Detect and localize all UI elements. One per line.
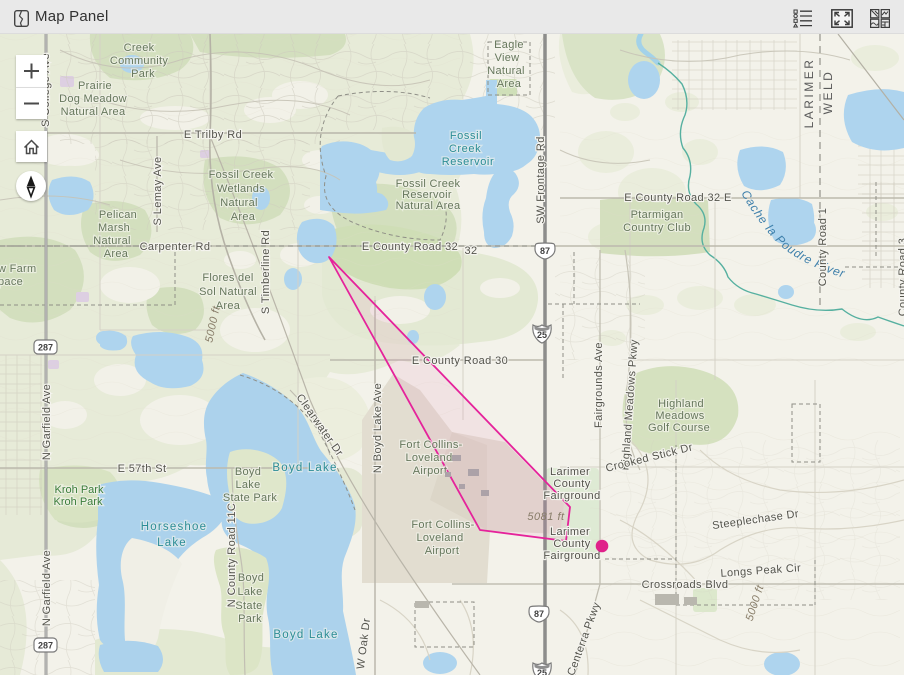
svg-text:Larimer: Larimer bbox=[550, 526, 590, 538]
svg-text:N County Road 11C: N County Road 11C bbox=[226, 503, 238, 607]
svg-text:State Park: State Park bbox=[223, 492, 278, 504]
svg-text:Airport: Airport bbox=[425, 545, 460, 557]
svg-text:County: County bbox=[553, 538, 590, 550]
svg-text:Country Club: Country Club bbox=[623, 222, 691, 234]
svg-text:Wetlands: Wetlands bbox=[217, 183, 265, 195]
svg-text:Park: Park bbox=[238, 613, 262, 625]
svg-text:Fossil Creek: Fossil Creek bbox=[209, 169, 274, 181]
svg-text:N Boyd Lake Ave: N Boyd Lake Ave bbox=[372, 383, 384, 473]
svg-text:25: 25 bbox=[537, 668, 547, 675]
svg-text:Dog Meadow: Dog Meadow bbox=[59, 93, 127, 105]
svg-text:87: 87 bbox=[540, 246, 550, 256]
svg-text:Fairground: Fairground bbox=[543, 550, 600, 562]
svg-text:Golf Course: Golf Course bbox=[648, 422, 710, 434]
svg-text:Natural: Natural bbox=[220, 197, 258, 209]
svg-text:Crossroads Blvd: Crossroads Blvd bbox=[642, 579, 729, 591]
svg-text:N Garfield Ave: N Garfield Ave bbox=[41, 550, 53, 626]
svg-text:Kroh Park: Kroh Park bbox=[55, 484, 104, 496]
svg-text:Fort Collins-: Fort Collins- bbox=[399, 439, 462, 451]
svg-text:E County Road 30: E County Road 30 bbox=[412, 355, 508, 367]
svg-text:Boyd Lake: Boyd Lake bbox=[273, 629, 338, 641]
svg-text:Prairie: Prairie bbox=[78, 80, 112, 92]
svg-text:Area: Area bbox=[231, 211, 256, 223]
svg-text:S Timberline Rd: S Timberline Rd bbox=[260, 230, 272, 314]
svg-text:5081 ft: 5081 ft bbox=[527, 511, 565, 523]
svg-text:Meadows: Meadows bbox=[655, 410, 704, 422]
svg-text:Lake: Lake bbox=[235, 479, 260, 491]
svg-text:Natural: Natural bbox=[93, 235, 131, 247]
svg-text:87: 87 bbox=[534, 609, 544, 619]
svg-text:Fossil: Fossil bbox=[450, 130, 482, 142]
svg-text:County Road 1: County Road 1 bbox=[817, 208, 829, 287]
svg-text:Boyd: Boyd bbox=[235, 466, 261, 478]
svg-text:County Road 3: County Road 3 bbox=[897, 238, 904, 317]
svg-text:Creek: Creek bbox=[449, 143, 481, 155]
svg-text:Ptarmigan: Ptarmigan bbox=[631, 209, 684, 221]
svg-text:pace: pace bbox=[0, 276, 23, 288]
svg-text:Area: Area bbox=[104, 248, 129, 260]
svg-text:Natural Area: Natural Area bbox=[396, 200, 461, 212]
svg-text:Boyd Lake: Boyd Lake bbox=[272, 462, 337, 474]
svg-text:S Lemay Ave: S Lemay Ave bbox=[152, 156, 164, 225]
svg-text:SW Frontage Rd: SW Frontage Rd bbox=[535, 136, 547, 224]
svg-text:View: View bbox=[495, 52, 520, 64]
svg-text:Kroh Park: Kroh Park bbox=[54, 496, 103, 508]
svg-text:Carpenter Rd: Carpenter Rd bbox=[140, 241, 211, 253]
svg-text:32: 32 bbox=[464, 245, 477, 257]
svg-text:LARIMER: LARIMER bbox=[802, 58, 816, 129]
svg-text:Boyd: Boyd bbox=[238, 572, 264, 584]
svg-text:25: 25 bbox=[537, 330, 547, 340]
svg-text:Park: Park bbox=[131, 68, 155, 80]
svg-text:287: 287 bbox=[38, 641, 53, 651]
svg-text:E 57th St: E 57th St bbox=[118, 463, 167, 475]
svg-text:Marsh: Marsh bbox=[98, 222, 130, 234]
svg-text:Lake: Lake bbox=[237, 586, 262, 598]
svg-text:Eagle: Eagle bbox=[494, 39, 524, 51]
svg-text:E County Road 32: E County Road 32 bbox=[362, 241, 458, 253]
svg-text:287: 287 bbox=[38, 343, 53, 353]
svg-text:Horseshoe: Horseshoe bbox=[141, 521, 207, 533]
svg-text:Pelican: Pelican bbox=[99, 209, 137, 221]
svg-text:Fairgrounds Ave: Fairgrounds Ave bbox=[593, 342, 605, 428]
svg-text:Airport: Airport bbox=[413, 465, 448, 477]
svg-text:Larimer: Larimer bbox=[550, 466, 590, 478]
svg-text:E County Road 32 E: E County Road 32 E bbox=[624, 192, 731, 204]
svg-text:Natural: Natural bbox=[487, 65, 525, 77]
svg-text:WELD: WELD bbox=[821, 70, 835, 115]
svg-text:State: State bbox=[235, 600, 262, 612]
svg-text:Natural Area: Natural Area bbox=[61, 106, 126, 118]
svg-text:Sol Natural: Sol Natural bbox=[199, 286, 257, 298]
svg-text:N Garfield Ave: N Garfield Ave bbox=[41, 384, 53, 460]
svg-text:Community: Community bbox=[110, 55, 169, 67]
svg-text:E Trilby Rd: E Trilby Rd bbox=[184, 129, 242, 141]
svg-text:w Farm: w Farm bbox=[0, 263, 36, 275]
svg-text:Highland: Highland bbox=[658, 398, 704, 410]
svg-text:County: County bbox=[553, 478, 590, 490]
svg-text:Flores del: Flores del bbox=[202, 272, 253, 284]
svg-text:Reservoir: Reservoir bbox=[442, 156, 494, 168]
svg-text:Fort Collins-: Fort Collins- bbox=[411, 519, 474, 531]
svg-text:Area: Area bbox=[497, 78, 522, 90]
svg-text:Loveland: Loveland bbox=[416, 532, 463, 544]
svg-text:Fairground: Fairground bbox=[543, 490, 600, 502]
svg-text:Loveland: Loveland bbox=[405, 452, 452, 464]
svg-text:Lake: Lake bbox=[157, 537, 187, 549]
svg-text:Creek: Creek bbox=[124, 42, 155, 54]
